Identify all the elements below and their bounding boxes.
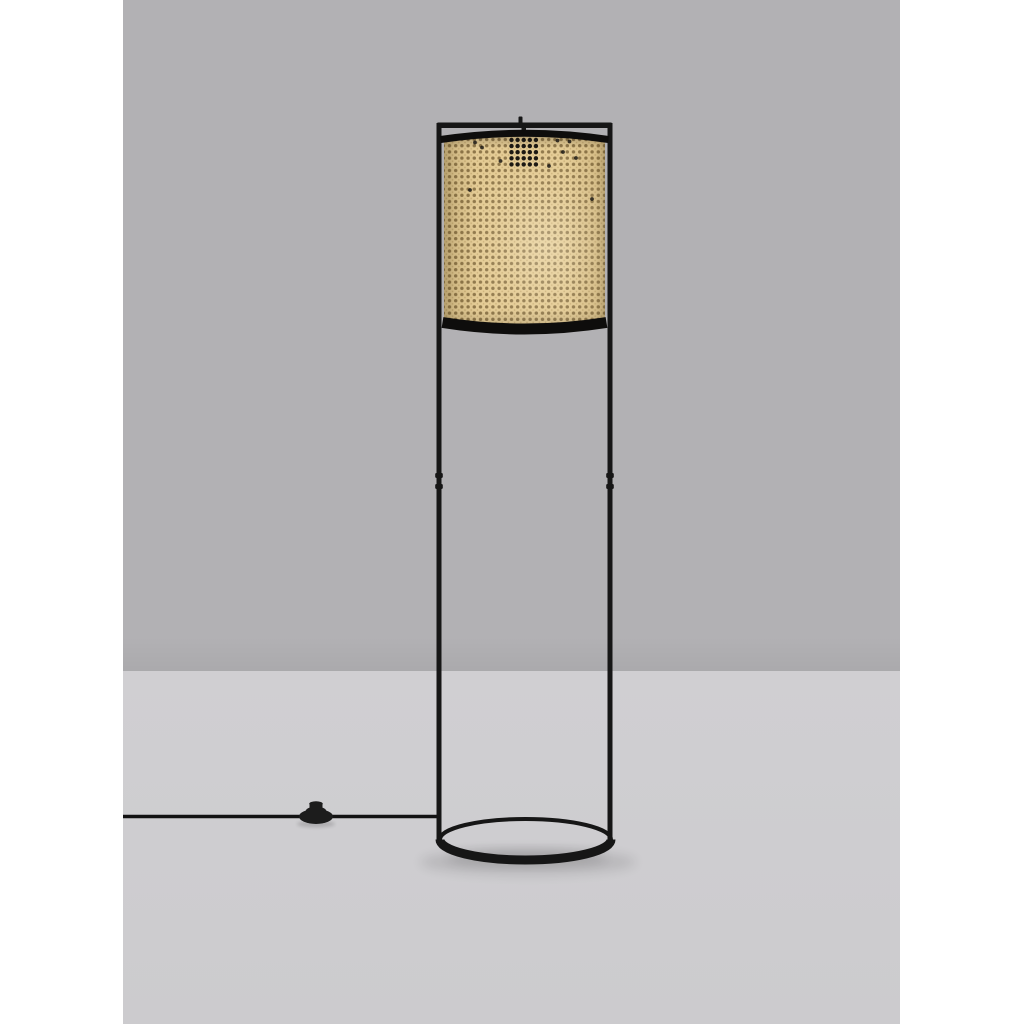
shade-dark-dot (534, 162, 538, 166)
shade-dark-dot (499, 159, 503, 163)
page: { "meta": { "kind": "product-photo", "su… (0, 0, 1024, 1024)
foot-switch (299, 801, 333, 824)
shade-dark-dot (528, 156, 532, 160)
shade-dark-dot (480, 146, 484, 150)
shade-dark-dot (509, 144, 513, 148)
shade-dark-dot (515, 144, 519, 148)
shade-dark-dot (528, 138, 532, 142)
shade-dark-dot (473, 141, 477, 145)
lamp-shade (441, 133, 609, 329)
frame-left-bar (437, 123, 442, 842)
shade-dark-dot (522, 156, 526, 160)
frame-right-bar (608, 123, 613, 842)
shade-dark-dot (568, 140, 572, 144)
shade-dark-dot (590, 197, 594, 201)
frame-right-joint2 (606, 484, 614, 489)
shade-dark-dot (528, 162, 532, 166)
frame-left-joint (435, 473, 443, 478)
frame-left-joint2 (435, 484, 443, 489)
shade-dark-dot (534, 156, 538, 160)
shade-dark-dot (515, 150, 519, 154)
floor-lamp-scene (0, 0, 1024, 1024)
shade-dark-dot (561, 150, 565, 154)
shade-dark-dot (534, 144, 538, 148)
shade-dark-dot (509, 150, 513, 154)
shade-dark-dot (509, 156, 513, 160)
hanger-nub (519, 117, 523, 124)
shade-dark-dot (468, 188, 472, 192)
shade-dark-dot (547, 164, 551, 168)
frame-right-joint (606, 473, 614, 478)
shade-dark-dot (522, 138, 526, 142)
shade-dark-dot (522, 162, 526, 166)
switch-button-top (309, 801, 323, 806)
shade-dark-dot (509, 138, 513, 142)
shade-dark-dot (574, 156, 578, 160)
shade-dark-dot (534, 138, 538, 142)
shade-dark-dot (515, 162, 519, 166)
shade-dark-dot (534, 150, 538, 154)
shade-dark-dot (515, 138, 519, 142)
shade-dark-dot (515, 156, 519, 160)
shade-dark-dot (522, 144, 526, 148)
shade-dark-dot (522, 150, 526, 154)
shade-dark-dot (528, 150, 532, 154)
shade-dark-dot (556, 139, 560, 143)
shade-dark-dot (528, 144, 532, 148)
shade-dark-dot (509, 162, 513, 166)
